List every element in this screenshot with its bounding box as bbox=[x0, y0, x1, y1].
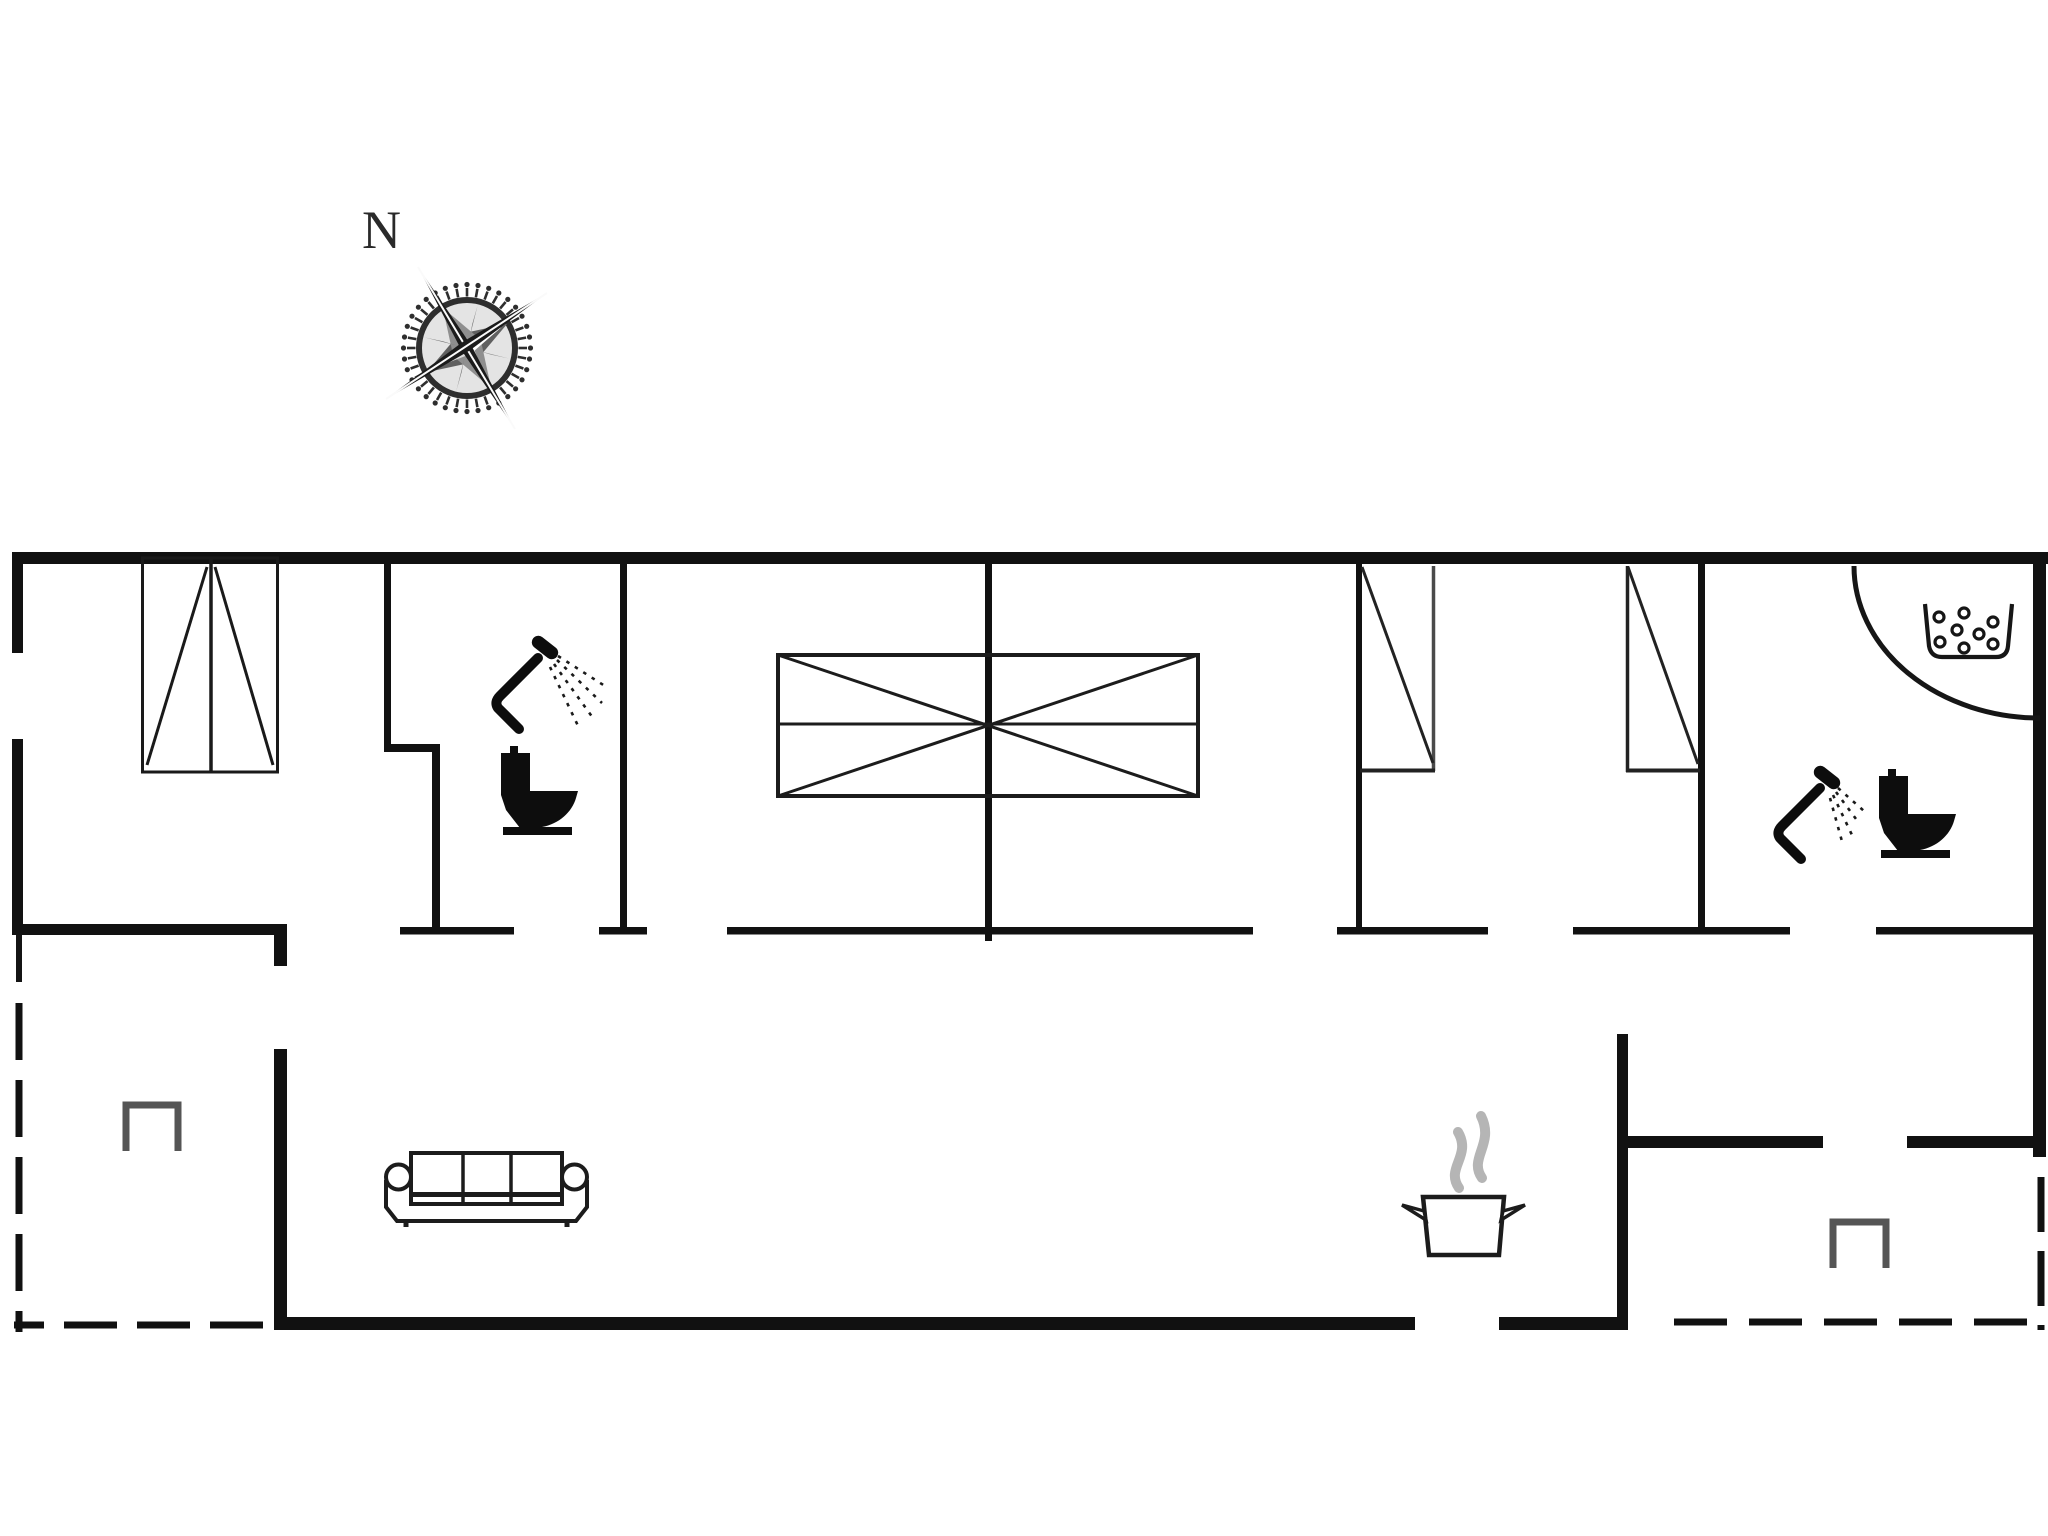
svg-text:N: N bbox=[362, 200, 401, 260]
